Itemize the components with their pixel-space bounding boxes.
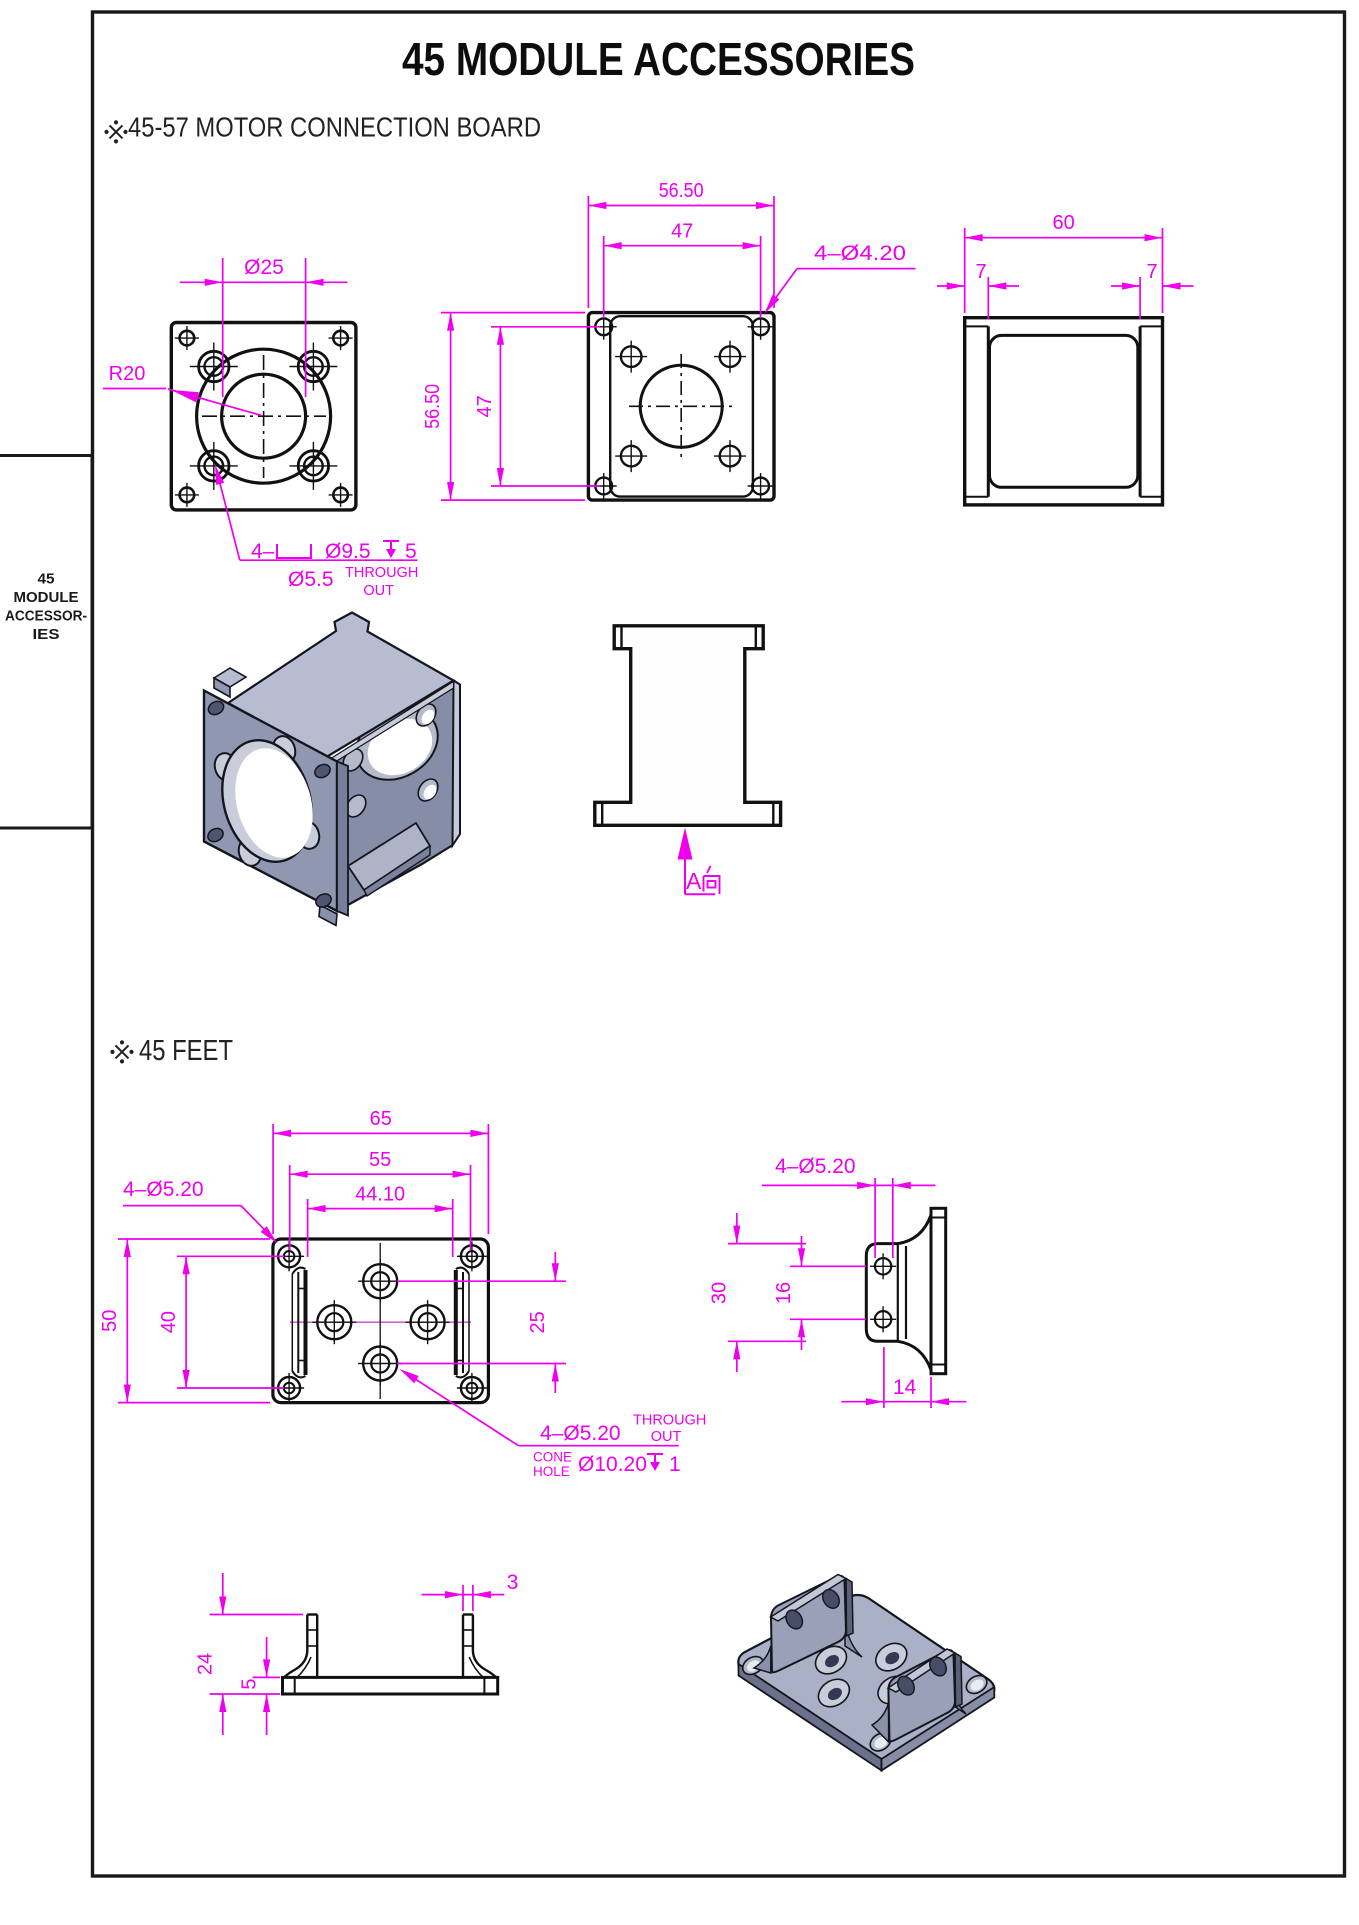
svg-text:56.50: 56.50 [659, 180, 704, 202]
svg-text:Ø9.5: Ø9.5 [325, 540, 371, 563]
svg-text:HOLE: HOLE [533, 1464, 570, 1479]
svg-text:ACCESSOR-: ACCESSOR- [5, 609, 87, 625]
svg-text:60: 60 [1052, 212, 1074, 234]
svg-text:40: 40 [158, 1311, 180, 1333]
svg-text:4–Ø5.20: 4–Ø5.20 [775, 1155, 856, 1178]
svg-text:4–: 4– [251, 540, 275, 563]
svg-text:R20: R20 [109, 363, 146, 385]
svg-text:25: 25 [527, 1311, 549, 1333]
svg-text:4–Ø4.20: 4–Ø4.20 [814, 242, 906, 265]
svg-text:OUT: OUT [363, 583, 394, 599]
svg-text:45: 45 [38, 572, 55, 588]
svg-text:4–Ø5.20: 4–Ø5.20 [540, 1422, 621, 1445]
svg-text:CONE: CONE [533, 1450, 572, 1465]
svg-text:30: 30 [709, 1282, 731, 1304]
svg-text:Ø25: Ø25 [244, 256, 284, 279]
svg-text:IES: IES [33, 627, 60, 643]
svg-text:45 FEET: 45 FEET [139, 1035, 233, 1067]
svg-text:47: 47 [474, 395, 496, 417]
svg-text:5: 5 [238, 1678, 260, 1689]
svg-text:45-57 MOTOR CONNECTION BOARD: 45-57 MOTOR CONNECTION BOARD [128, 112, 541, 143]
svg-text:THROUGH: THROUGH [345, 565, 418, 581]
svg-text:50: 50 [99, 1310, 121, 1332]
svg-text:Ø10.20: Ø10.20 [578, 1453, 647, 1476]
svg-text:7: 7 [975, 261, 986, 283]
svg-text:7: 7 [1146, 261, 1157, 283]
svg-text:OUT: OUT [651, 1429, 682, 1445]
svg-text:MODULE: MODULE [14, 590, 79, 606]
svg-text:5: 5 [405, 540, 417, 563]
svg-text:4–Ø5.20: 4–Ø5.20 [123, 1178, 204, 1201]
svg-text:THROUGH: THROUGH [633, 1413, 706, 1429]
svg-text:16: 16 [773, 1282, 795, 1304]
svg-text:56.50: 56.50 [422, 384, 444, 429]
svg-text:45 MODULE ACCESSORIES: 45 MODULE ACCESSORIES [402, 33, 915, 85]
svg-text:Ø5.5: Ø5.5 [288, 568, 334, 591]
svg-text:44.10: 44.10 [355, 1184, 405, 1206]
svg-text:14: 14 [893, 1376, 917, 1399]
svg-text:47: 47 [671, 221, 693, 243]
svg-text:A: A [686, 868, 702, 894]
svg-text:1: 1 [669, 1453, 681, 1476]
svg-text:55: 55 [369, 1149, 391, 1171]
svg-text:3: 3 [507, 1571, 519, 1594]
svg-text:24: 24 [195, 1653, 217, 1675]
svg-text:65: 65 [370, 1108, 392, 1130]
